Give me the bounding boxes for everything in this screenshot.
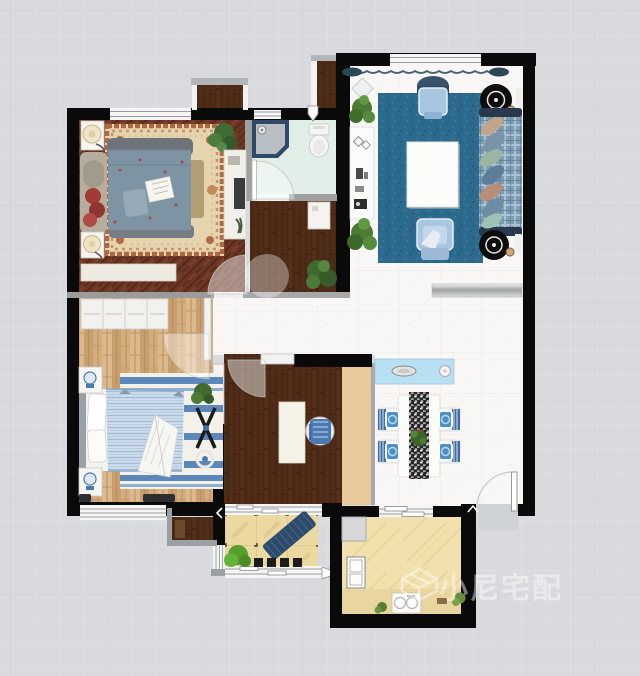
- svg-text:小尼宅配: 小尼宅配: [439, 571, 563, 605]
